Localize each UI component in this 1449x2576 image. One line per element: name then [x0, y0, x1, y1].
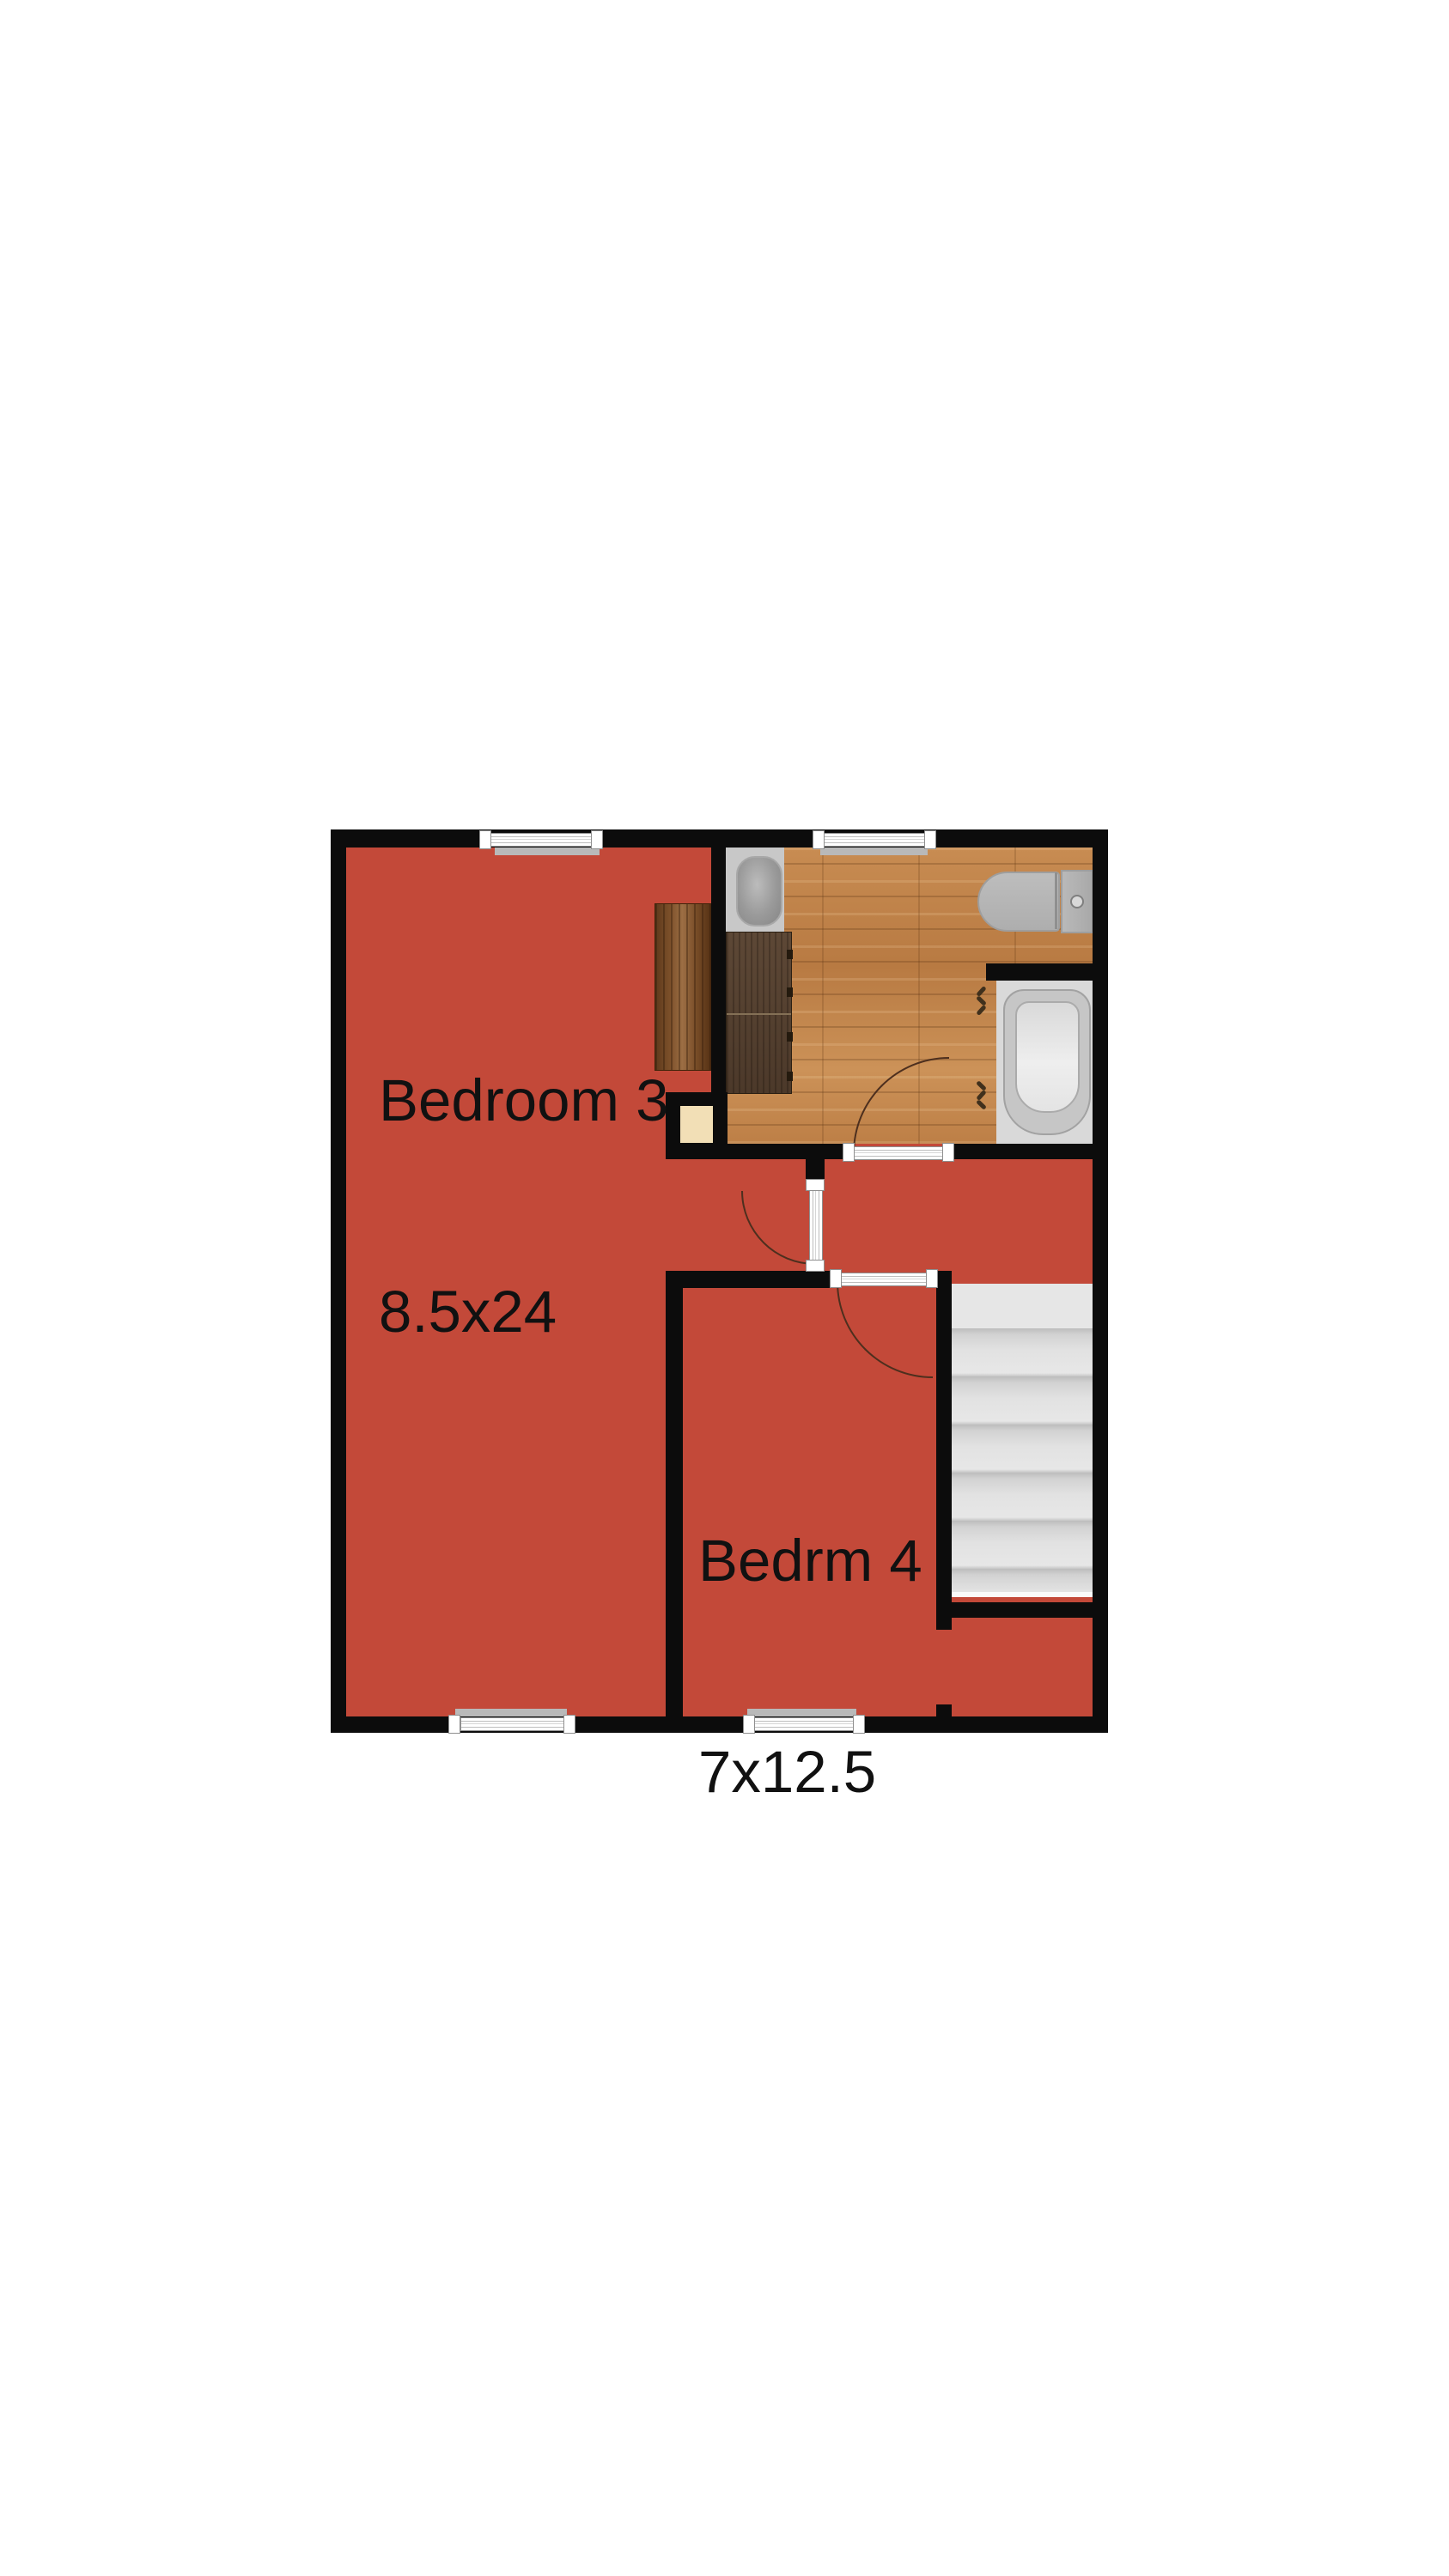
window-cap	[479, 830, 491, 849]
vanity-knob	[787, 950, 793, 959]
bedroom3-dimensions: 8.5x24	[379, 1277, 669, 1347]
sink	[736, 856, 782, 927]
door-cap	[830, 1269, 842, 1288]
bedroom4-door	[835, 1273, 933, 1286]
wall-understair-stub	[936, 1704, 952, 1716]
window-cap	[591, 830, 603, 849]
wall-bathroom-left	[711, 829, 726, 1092]
door-cap	[926, 1269, 938, 1288]
stair-base	[952, 1592, 1093, 1597]
bedroom4-name: Bedrm 4	[698, 1526, 922, 1596]
toilet-bowl	[977, 872, 1060, 932]
bedroom3-door	[809, 1184, 823, 1268]
closet-niche-floor	[680, 1106, 713, 1143]
floorplan-page: Bedroom 3 8.5x24 Bedrm 4 7x12.5	[0, 0, 1449, 2576]
vanity-cabinet	[726, 932, 792, 1094]
floorplan: Bedroom 3 8.5x24 Bedrm 4 7x12.5	[331, 829, 1108, 1733]
toilet-seam	[1055, 872, 1057, 929]
wall-bedroom4-top	[666, 1271, 835, 1288]
bedroom3-name: Bedroom 3	[379, 1066, 669, 1136]
door-cap	[806, 1179, 825, 1191]
towel-marks	[976, 989, 987, 1012]
window-cap	[813, 830, 825, 849]
staircase	[952, 1284, 1093, 1597]
vanity-divider	[727, 1013, 791, 1015]
vanity-knob	[787, 1072, 793, 1081]
wall-bathroom-bottom-right	[950, 1144, 1108, 1159]
towel-marks	[976, 1084, 987, 1107]
window-cap	[448, 1715, 460, 1734]
window-sill	[820, 848, 928, 855]
window-cap	[924, 830, 936, 849]
bathtub	[1003, 989, 1091, 1135]
bedroom3-label: Bedroom 3 8.5x24	[379, 925, 669, 1488]
wall-left	[331, 829, 346, 1733]
window-bedroom3-bottom	[460, 1717, 567, 1731]
window-sill	[495, 848, 600, 855]
stair-steps	[952, 1328, 1093, 1592]
bedroom4-label: Bedrm 4 7x12.5	[698, 1385, 922, 1948]
wall-bathroom-bottom-left	[726, 1144, 848, 1159]
stair-landing	[952, 1284, 1093, 1328]
bedroom4-door-swing	[837, 1282, 933, 1378]
bathtub-basin	[1015, 1001, 1080, 1113]
bedroom3-door-swing	[741, 1191, 815, 1265]
door-cap	[843, 1143, 855, 1162]
vanity-knob	[787, 1032, 793, 1042]
window-bedroom3-top	[486, 833, 600, 847]
door-cap	[806, 1260, 825, 1272]
wall-stairs-left	[936, 1271, 952, 1630]
window-cap	[563, 1715, 575, 1734]
bedroom4-dimensions: 7x12.5	[698, 1737, 922, 1807]
wall-stairs-bottom	[936, 1602, 1108, 1618]
door-cap	[942, 1143, 954, 1162]
wall-toilet-tub-stub	[986, 963, 1108, 981]
window-bathroom-top	[823, 833, 928, 847]
bathroom-door	[846, 1146, 953, 1160]
toilet-flush-button	[1070, 895, 1084, 908]
vanity-knob	[787, 987, 793, 997]
window-sill	[455, 1709, 567, 1716]
